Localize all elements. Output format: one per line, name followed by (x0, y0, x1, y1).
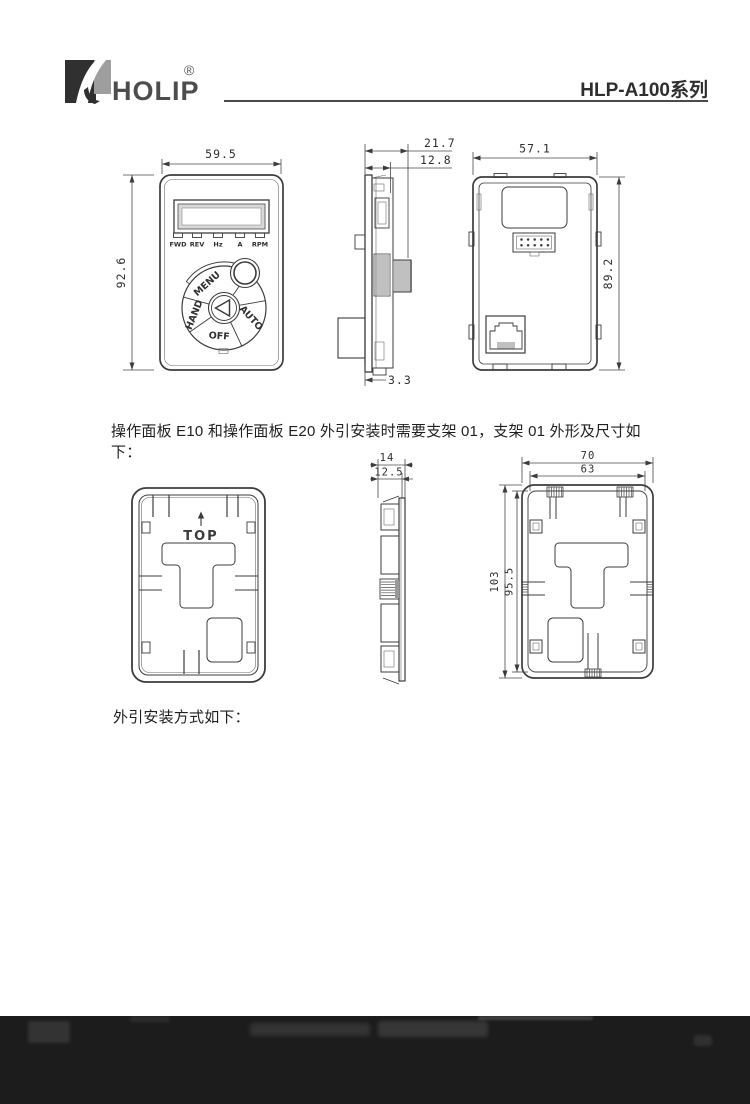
t-slot-cutout (555, 543, 628, 608)
bracket-side-profile (380, 496, 405, 684)
header-rule (224, 100, 708, 102)
bracket-back-view-drawing: 70 63 (488, 443, 700, 695)
lcd-display (174, 200, 269, 233)
back-height-dimension: 89.2 (599, 177, 625, 370)
keypad-front-height-dimension: 92.6 (114, 175, 154, 370)
off-button-label: OFF (208, 330, 230, 342)
bracket-back-body (522, 485, 653, 678)
photo-highlight (694, 1035, 712, 1046)
led-label-hz: Hz (213, 241, 222, 249)
back-width-dim-text: 57.1 (519, 142, 551, 156)
knob-side-profile (393, 260, 411, 292)
mounting-slots (139, 495, 258, 674)
back-width-dimension: 57.1 (473, 142, 597, 176)
bracket-outer-width-dim-text: 70 (581, 450, 596, 462)
led-indicators: FWD REV Hz A RPM (169, 233, 268, 249)
top-clip-prongs (547, 487, 633, 519)
keypad-width-dim-text: 59.5 (205, 147, 237, 161)
side-profile (338, 175, 411, 375)
bracket-total-depth-dim-text: 14 (380, 452, 395, 464)
square-cutout (548, 618, 583, 662)
side-depth-dimensions: 21.7 12.8 (365, 136, 456, 258)
top-orientation-marker: TOP (183, 512, 218, 545)
total-depth-dim-text: 21.7 (424, 136, 456, 150)
top-label: TOP (183, 529, 218, 544)
series-title: HLP-A100系列 (580, 75, 708, 102)
back-height-dim-text: 89.2 (601, 258, 615, 290)
photo-highlight (250, 1023, 370, 1036)
photo-highlight (478, 1016, 593, 1020)
bracket-depth-dimensions: 14 12.5 (370, 452, 413, 498)
manual-page: HOLIP ® HLP-A100系列 59.5 92.6 (0, 0, 750, 1104)
auto-button-label: AUTO (237, 304, 265, 333)
bracket-outer-height-dim-text: 103 (489, 571, 501, 593)
holip-logo-icon (65, 57, 113, 109)
keypad-side-view-drawing: 21.7 12.8 (328, 118, 463, 398)
bracket-side-view-drawing: 14 12.5 (356, 446, 468, 688)
t-slot-cutout (162, 543, 235, 608)
keypad-back-body (469, 174, 601, 371)
bottom-clip-prongs (585, 633, 601, 677)
bracket-inner-depth-dim-text: 12.5 (374, 467, 403, 479)
tab-depth-dim-text: 3.3 (388, 373, 412, 387)
logo-text: HOLIP (112, 76, 200, 107)
photo-highlight (28, 1021, 70, 1043)
keypad-front-width-dimension: 59.5 (162, 147, 281, 174)
body-depth-dim-text: 12.8 (420, 153, 452, 167)
photo-highlight (378, 1021, 488, 1037)
bracket-inner-height-dim-text: 95.5 (504, 567, 516, 596)
mounting-note-text: 外引安装方式如下： (113, 706, 513, 727)
page-header: HOLIP ® HLP-A100系列 (0, 0, 750, 120)
bracket-front-view-drawing: TOP (128, 468, 278, 690)
button-cluster: MENU HAND OFF AUTO (182, 259, 266, 354)
photo-highlight (130, 1016, 170, 1022)
keypad-height-dim-text: 92.6 (114, 257, 128, 289)
keypad-back-view-drawing: 57.1 (453, 136, 703, 391)
hand-button-label: HAND (184, 298, 206, 331)
registered-trademark-symbol: ® (184, 62, 194, 78)
led-label-a: A (237, 241, 242, 249)
led-label-rpm: RPM (252, 241, 268, 249)
keypad-front-view-drawing: 59.5 92.6 FWD REV Hz A (108, 138, 318, 393)
footer-photo-strip (0, 1016, 750, 1104)
center-button (209, 293, 240, 324)
bracket-inner-width-dim-text: 63 (581, 464, 596, 476)
rj45-jack (486, 316, 525, 353)
square-cutout (207, 618, 242, 662)
pin-connector (513, 233, 555, 256)
led-label-fwd: FWD (169, 241, 187, 249)
side-slots (522, 582, 653, 595)
led-label-rev: REV (190, 241, 204, 249)
